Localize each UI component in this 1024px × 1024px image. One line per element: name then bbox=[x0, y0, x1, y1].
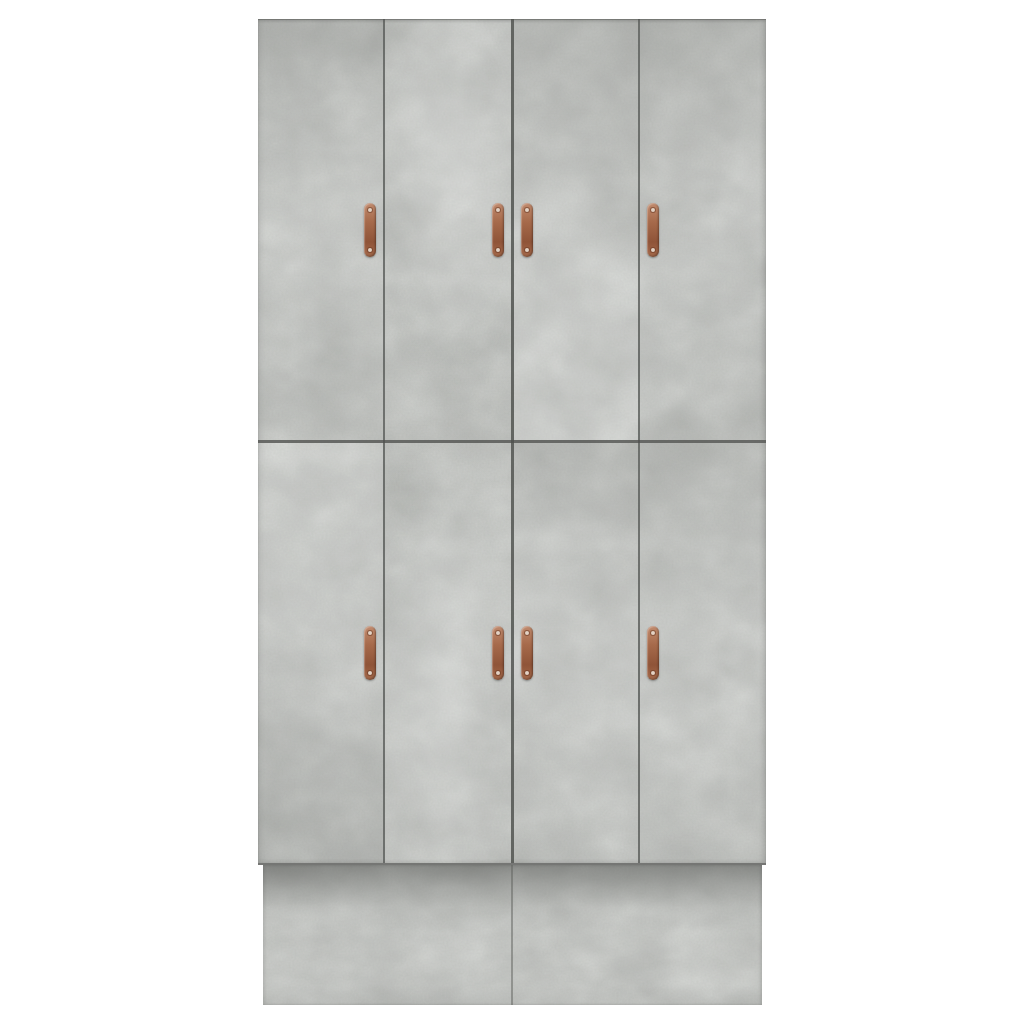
door-grid bbox=[258, 19, 766, 863]
handle-screw bbox=[525, 248, 529, 252]
handle-screw bbox=[368, 248, 372, 252]
copper-handle bbox=[521, 626, 533, 680]
handle-screw bbox=[525, 671, 529, 675]
copper-handle bbox=[364, 203, 376, 257]
product-photo bbox=[0, 0, 1024, 1024]
wardrobe-cabinet bbox=[258, 19, 766, 865]
handle-screw bbox=[496, 248, 500, 252]
copper-handle bbox=[647, 626, 659, 680]
bottom-mid-right-door bbox=[514, 443, 638, 863]
bottom-mid-left-door bbox=[385, 443, 511, 863]
handle-screw bbox=[368, 671, 372, 675]
copper-handle bbox=[364, 626, 376, 680]
copper-handle bbox=[492, 626, 504, 680]
door-overhang-shadow bbox=[263, 865, 762, 1005]
handle-screw bbox=[496, 671, 500, 675]
handle-screw bbox=[368, 208, 372, 212]
plinth-centre-seam bbox=[511, 865, 513, 1005]
handle-screw bbox=[525, 631, 529, 635]
plinth-concrete-texture bbox=[263, 865, 762, 1005]
handle-screw bbox=[525, 208, 529, 212]
bottom-far-right-door bbox=[640, 443, 766, 863]
handle-screw bbox=[651, 631, 655, 635]
top-far-left-door bbox=[258, 19, 383, 440]
handle-screw bbox=[651, 671, 655, 675]
copper-handle bbox=[647, 203, 659, 257]
top-far-right-door bbox=[640, 19, 766, 440]
handle-screw bbox=[496, 631, 500, 635]
top-mid-left-door bbox=[385, 19, 511, 440]
handle-screw bbox=[651, 208, 655, 212]
handle-screw bbox=[368, 631, 372, 635]
handle-screw bbox=[496, 208, 500, 212]
plinth-base bbox=[263, 865, 762, 1005]
handle-screw bbox=[651, 248, 655, 252]
top-mid-right-door bbox=[514, 19, 638, 440]
copper-handle bbox=[492, 203, 504, 257]
copper-handle bbox=[521, 203, 533, 257]
bottom-far-left-door bbox=[258, 443, 383, 863]
